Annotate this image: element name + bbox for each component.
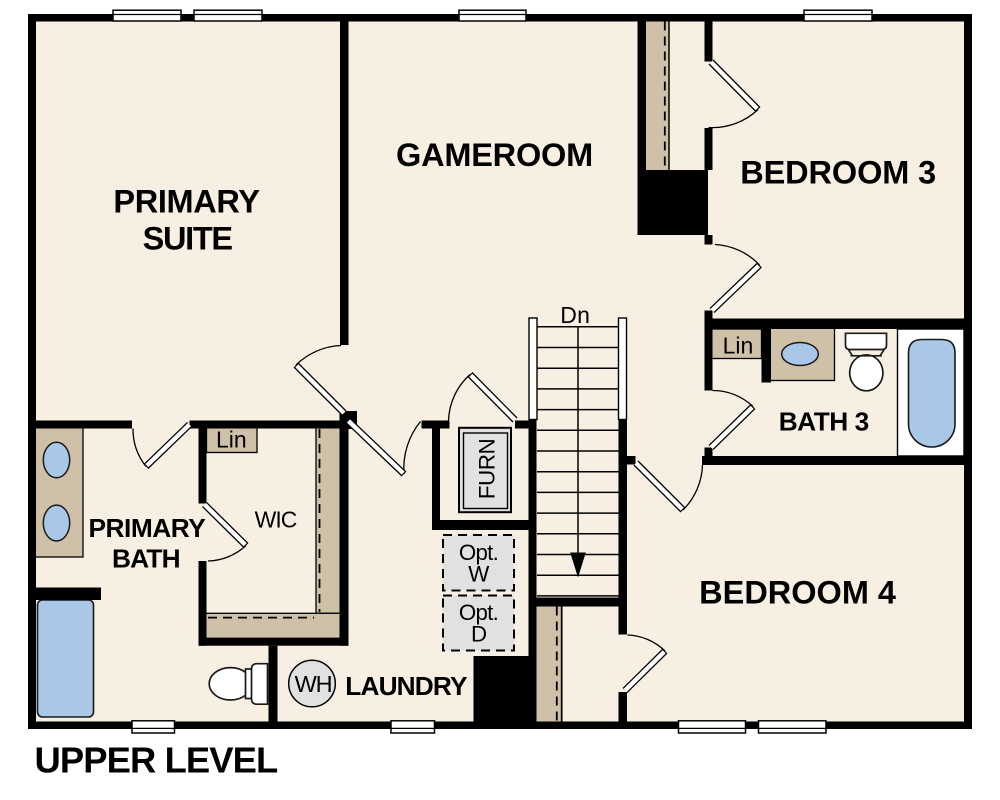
svg-text:FURN: FURN	[475, 439, 500, 500]
svg-text:SUITE: SUITE	[143, 220, 233, 256]
svg-text:PRIMARY: PRIMARY	[113, 183, 260, 219]
svg-text:BEDROOM 3: BEDROOM 3	[740, 155, 936, 191]
svg-text:BATH: BATH	[112, 543, 180, 573]
svg-text:BEDROOM 4: BEDROOM 4	[699, 574, 896, 610]
svg-text:PRIMARY: PRIMARY	[89, 513, 207, 543]
svg-text:GAMEROOM: GAMEROOM	[396, 137, 593, 173]
svg-text:LAUNDRY: LAUNDRY	[345, 671, 468, 701]
svg-text:WH: WH	[295, 671, 332, 697]
svg-text:WIC: WIC	[255, 507, 297, 533]
svg-text:Dn: Dn	[560, 302, 590, 328]
svg-text:W: W	[468, 562, 489, 587]
svg-text:Lin: Lin	[216, 427, 247, 453]
svg-text:D: D	[471, 622, 487, 647]
svg-text:BATH 3: BATH 3	[779, 407, 869, 437]
svg-text:Lin: Lin	[723, 333, 754, 359]
svg-text:UPPER LEVEL: UPPER LEVEL	[35, 740, 279, 781]
